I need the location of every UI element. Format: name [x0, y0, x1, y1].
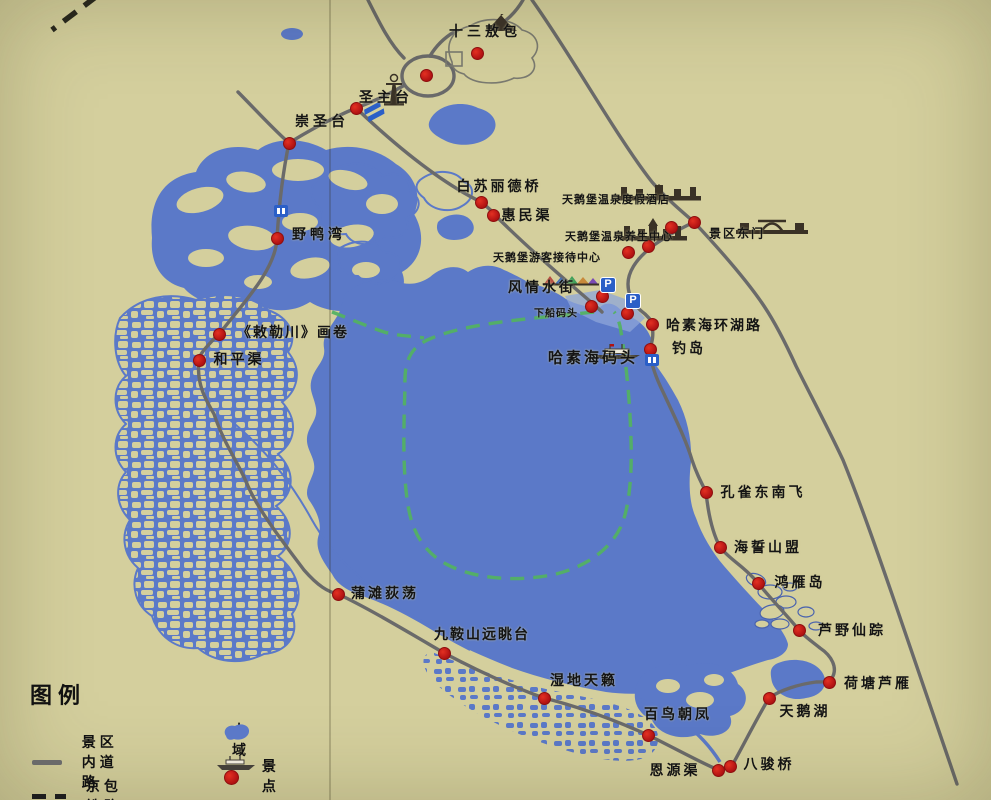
legend-railway-label: 京包铁路 [86, 776, 128, 800]
small-pond [437, 215, 474, 241]
legend: 图例 景区内道路 京包铁路 水域 景点 [30, 678, 86, 710]
chongshengtai-dot [283, 137, 296, 150]
west-labyrinth-wetland [115, 295, 298, 661]
xiachuan-dock-label: 下船码头 [534, 305, 578, 320]
diao-island-label: 钓岛 [672, 338, 706, 358]
enyuan-canal-label: 恩源渠 [650, 760, 701, 780]
shisan-aobao-label: 十三敖包 [449, 21, 521, 41]
yeyawan-dot [271, 232, 284, 245]
haishi-shanmeng-dot [714, 541, 727, 554]
jiuanshan-lookout-dot [438, 647, 451, 660]
shengzhutai-label: 圣主台 [359, 87, 413, 107]
fengqing-street-label: 风情水街 [508, 277, 576, 297]
heping-canal-label: 和平渠 [214, 349, 265, 369]
hetang-luyan-dot [823, 676, 836, 689]
enyuan-canal-dot [712, 764, 725, 777]
bajun-bridge-dot [724, 760, 737, 773]
chilechuan-scroll-label: 《敕勒川》画卷 [237, 322, 349, 342]
hongyan-island-label: 鸿雁岛 [775, 572, 826, 592]
jiuanshan-lookout-label: 九鞍山远眺台 [434, 624, 530, 644]
luye-xianzong-dot [793, 624, 806, 637]
luye-xianzong-label: 芦野仙踪 [818, 620, 886, 640]
chilechuan-scroll-dot [213, 328, 226, 341]
swan-lake-label: 天鹅湖 [780, 701, 831, 721]
shengzhutai-dot [420, 69, 433, 82]
railway-line-sample [32, 794, 66, 799]
shidi-tianlai-label: 湿地天籁 [550, 670, 618, 690]
parking-icon: P [600, 277, 616, 293]
dock-sign-icon [645, 354, 659, 366]
hetang-luyan-label: 荷塘芦雁 [844, 673, 912, 693]
bainiao-chaofeng-label: 百鸟朝凤 [644, 704, 712, 724]
wellness-center-label: 天鹅堡温泉养生中心 [565, 228, 673, 244]
parking-icon: P [625, 293, 641, 309]
huanhu-road-dot [646, 318, 659, 331]
yeyawan-label: 野鸭湾 [292, 224, 346, 244]
xiachuan-dock-dot [585, 300, 598, 313]
east-gate-label: 景区东门 [709, 225, 765, 242]
map-fold-line [329, 0, 331, 800]
jingbao-railway-line [52, 0, 97, 30]
huanhu-road-label: 哈素海环湖路 [666, 315, 762, 335]
legend-title: 图例 [30, 678, 86, 710]
bajun-bridge-label: 八骏桥 [744, 754, 795, 774]
heping-canal-dot [193, 354, 206, 367]
kongque-dongnanfei-label: 孔雀东南飞 [721, 482, 806, 502]
putan-didang-label: 蒲滩荻荡 [351, 583, 419, 603]
huimin-canal-dot [487, 209, 500, 222]
hongyan-island-dot [752, 577, 765, 590]
shidi-tianlai-dot [538, 692, 551, 705]
legend-spot-label: 景点 [262, 756, 290, 796]
kidney-pond [429, 104, 496, 145]
putan-didang-dot [332, 588, 345, 601]
shisan-aobao-dot [471, 47, 484, 60]
wc-icon [274, 205, 288, 217]
bainiao-chaofeng-dot [642, 729, 655, 742]
map-graphics [0, 0, 991, 800]
visitor-center-label: 天鹅堡游客接待中心 [493, 249, 601, 265]
visitor-center-dot [622, 246, 635, 259]
tianebao-hotel-label: 天鹅堡温泉度假酒店 [562, 191, 670, 207]
chongshengtai-label: 崇圣台 [295, 111, 349, 131]
scenic-area-map: 图例 景区内道路 京包铁路 水域 景点 const data = JSON.pa… [0, 0, 991, 800]
tiny-pond [281, 28, 303, 40]
hasuhai-dock-label: 哈素海码头 [548, 347, 638, 368]
road-line-sample [32, 760, 62, 765]
haishi-shanmeng-label: 海誓山盟 [734, 537, 802, 557]
baisulide-bridge-dot [475, 196, 488, 209]
scenic-spot-icon [214, 768, 250, 785]
kongque-dongnanfei-dot [700, 486, 713, 499]
baisulide-bridge-label: 白苏丽德桥 [457, 176, 542, 196]
huimin-canal-label: 惠民渠 [502, 205, 553, 225]
water-area-icon [218, 720, 252, 746]
swan-lake-dot [763, 692, 776, 705]
east-gate-dot [688, 216, 701, 229]
